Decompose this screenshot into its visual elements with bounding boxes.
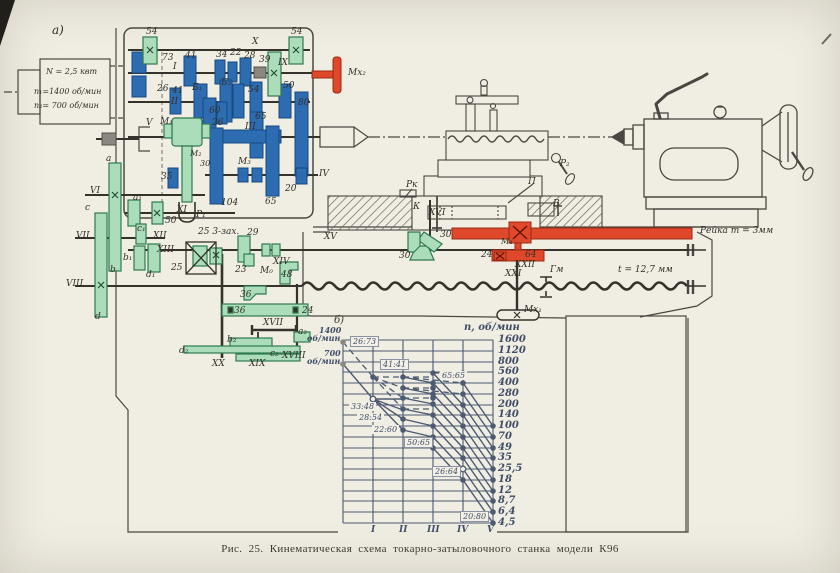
shaft-v-label: V xyxy=(146,119,153,128)
pitch-annotation: t = 12,7 мм xyxy=(618,266,673,275)
shaft-i-label: I xyxy=(173,63,177,72)
gear-60: 60 xyxy=(209,107,220,116)
clutch-m2-label: М₂ xyxy=(190,150,201,158)
figure-page: а) б) N = 2,5 квт n₁=1400 об/мин n₂= 700… xyxy=(0,0,840,573)
handle-mx1-label: Мх₁ xyxy=(524,306,542,315)
part-k-label: К xyxy=(413,203,420,212)
change-gear-b: b xyxy=(110,266,116,275)
change-gear-d1: d₁ xyxy=(146,271,155,280)
shaft-x-label: X xyxy=(252,38,258,47)
gear-54-ii: 54 xyxy=(248,86,259,95)
chart-shaft-iii: III xyxy=(427,526,440,535)
shaft-xiv-label: XIV xyxy=(273,258,289,267)
shaft-ii-label: II xyxy=(171,98,178,107)
speed-tick-25-5: 25,5 xyxy=(498,464,522,474)
gear-65-iv: 65 xyxy=(265,198,276,207)
change-gear-d2: d₂ xyxy=(179,347,188,356)
panel-a-label: а) xyxy=(52,24,64,36)
gear-30-m2: 30 xyxy=(200,160,210,168)
gear-22: 22 xyxy=(230,49,241,58)
clutch-m4-label: М₄ xyxy=(501,238,512,246)
part-p-label: П xyxy=(528,178,536,187)
gear-24-rack: 24 xyxy=(481,251,492,260)
gear-80: 80 xyxy=(298,99,309,108)
change-gear-a: a xyxy=(106,155,111,164)
shaft-ix-label: IX xyxy=(278,59,288,68)
speed-tick-140: 140 xyxy=(498,410,519,420)
gear-36-a: 36 xyxy=(240,291,251,300)
figure-caption: Рис. 25. Кинематическая схема токарно-за… xyxy=(0,543,840,555)
gear-104: 104 xyxy=(221,199,238,208)
motor-power: N = 2,5 квт xyxy=(46,68,97,76)
change-gear-a2: a₂ xyxy=(298,328,307,337)
chart-shaft-iv: IV xyxy=(457,526,468,535)
gear-41-ii: 41 xyxy=(172,87,183,96)
shaft-xx-label: XX xyxy=(212,360,225,369)
gear-20: 20 xyxy=(285,185,296,194)
shaft-xiii-label: XIII xyxy=(157,246,174,255)
shaft-xviii-label: XVIII xyxy=(282,352,306,361)
gear-25: 25 xyxy=(171,264,182,273)
ratio-28-54: 28:54 xyxy=(357,413,384,422)
gear-54-left: 54 xyxy=(146,28,157,37)
gear-50-ix: 50 xyxy=(283,82,294,91)
speed-tick-400: 400 xyxy=(498,378,519,388)
gear-36-b: 36 xyxy=(234,307,245,316)
gear-73: 73 xyxy=(162,54,173,63)
gear-65-iii: 65 xyxy=(255,113,266,122)
worm-label: 25 3-зах. xyxy=(198,228,239,237)
shaft-vi-label: VI xyxy=(90,187,100,196)
gear-26-iii: 26 xyxy=(212,119,223,128)
handle-mx2-label: Мх₂ xyxy=(348,69,366,78)
shaft-xxi-label: XXI xyxy=(505,270,521,279)
shaft-vii-label: VII xyxy=(76,232,90,241)
gear-28: 28 xyxy=(244,52,255,61)
change-gear-b1: b₁ xyxy=(123,254,132,263)
ratio-50-65: 50:65 xyxy=(404,437,433,448)
gear-30-bevel-b: 30 xyxy=(399,252,410,261)
stop-pk-label: Рк xyxy=(406,181,417,190)
chart-motor-speed2-unit: об/мин xyxy=(307,357,340,365)
gear-34: 34 xyxy=(216,51,227,60)
shaft-xi-label: XI xyxy=(177,206,187,215)
gear-block-b1: Б₁ xyxy=(192,84,202,93)
gear-64-rack: 64 xyxy=(525,251,536,260)
gear-26-ii: 26 xyxy=(157,85,168,94)
shaft-xix-label: XIX xyxy=(249,360,265,369)
shaft-iii-label: III xyxy=(245,123,256,132)
gear-39: 39 xyxy=(259,56,270,65)
shaft-xv-label: XV xyxy=(324,233,337,242)
lever-p1-label: Р₁ xyxy=(196,211,206,220)
clutch-m0-label: М₀ xyxy=(260,267,273,276)
speed-tick-1120: 1120 xyxy=(498,346,526,356)
label-layer: а) б) N = 2,5 квт n₁=1400 об/мин n₂= 700… xyxy=(0,0,840,573)
change-gear-c: c xyxy=(85,204,90,213)
crank-p2-label: Р₂ xyxy=(560,160,570,169)
speed-tick-18: 18 xyxy=(498,475,512,485)
gear-41-i: 41 xyxy=(185,52,196,61)
shaft-viii-label: VIII xyxy=(66,280,83,289)
gear-block-b2: Б₂ xyxy=(221,79,231,88)
motor-speed-1: n₁=1400 об/мин xyxy=(34,88,101,96)
ratio-26-73: 26:73 xyxy=(350,336,379,347)
gear-30-bevel-a: 30 xyxy=(440,231,451,240)
gear-50-xi: 50 xyxy=(165,217,176,226)
motor-speed-2: n₂= 700 об/мин xyxy=(34,102,99,110)
chart-motor-speed1-unit: об/мин xyxy=(307,334,340,342)
change-gear-c2: c₂ xyxy=(270,350,279,359)
part-v-label: В xyxy=(553,200,560,209)
speed-tick-8-7: 8,7 xyxy=(498,496,515,506)
speed-tick-35: 35 xyxy=(498,453,512,463)
speed-tick-1600: 1600 xyxy=(498,335,526,345)
shaft-xii-label: XII xyxy=(153,232,167,241)
speed-tick-560: 560 xyxy=(498,367,519,377)
ratio-22-60: 22:60 xyxy=(372,425,399,434)
ratio-65-65: 65:65 xyxy=(440,371,467,380)
change-gear-b2: b₂ xyxy=(227,336,236,345)
shaft-iv-label: IV xyxy=(319,170,329,179)
clutch-m1-label: М₁ xyxy=(160,118,173,127)
rack-annotation: Рейка m = 3мм xyxy=(700,227,773,236)
speed-tick-100: 100 xyxy=(498,421,519,431)
gear-29: 29 xyxy=(247,229,258,238)
speed-tick-280: 280 xyxy=(498,389,519,399)
ratio-41-41: 41:41 xyxy=(380,359,409,370)
chart-shaft-v: V xyxy=(487,526,494,535)
gear-24-xvii: 24 xyxy=(302,307,313,316)
speed-tick-70: 70 xyxy=(498,432,512,442)
gear-23: 23 xyxy=(235,266,246,275)
ratio-20-80: 20:80 xyxy=(460,511,489,522)
shaft-xvii-label: XVII xyxy=(263,319,283,328)
gear-35: 35 xyxy=(161,173,172,182)
speed-tick-6-4: 6,4 xyxy=(498,507,515,517)
change-gear-c1: c₁ xyxy=(137,225,146,234)
gear-48: 48 xyxy=(281,271,292,280)
chart-shaft-ii: II xyxy=(399,526,407,535)
speed-tick-4-5: 4,5 xyxy=(498,518,515,528)
change-gear-d: d xyxy=(95,313,101,322)
ratio-33-48: 33:48 xyxy=(349,402,376,411)
chart-shaft-i: I xyxy=(371,526,375,535)
shaft-xxii-label: XXII xyxy=(515,261,535,270)
change-gear-a1: a₁ xyxy=(133,194,142,203)
gear-54-right: 54 xyxy=(291,28,302,37)
clutch-m3-label: М₃ xyxy=(238,158,251,167)
chart-y-axis-label: n, об/мин xyxy=(464,323,520,333)
ratio-26-64: 26:64 xyxy=(432,466,461,477)
halfnut-gm-label: Гм xyxy=(550,266,563,275)
shaft-xvi-label: XVI xyxy=(429,209,445,218)
